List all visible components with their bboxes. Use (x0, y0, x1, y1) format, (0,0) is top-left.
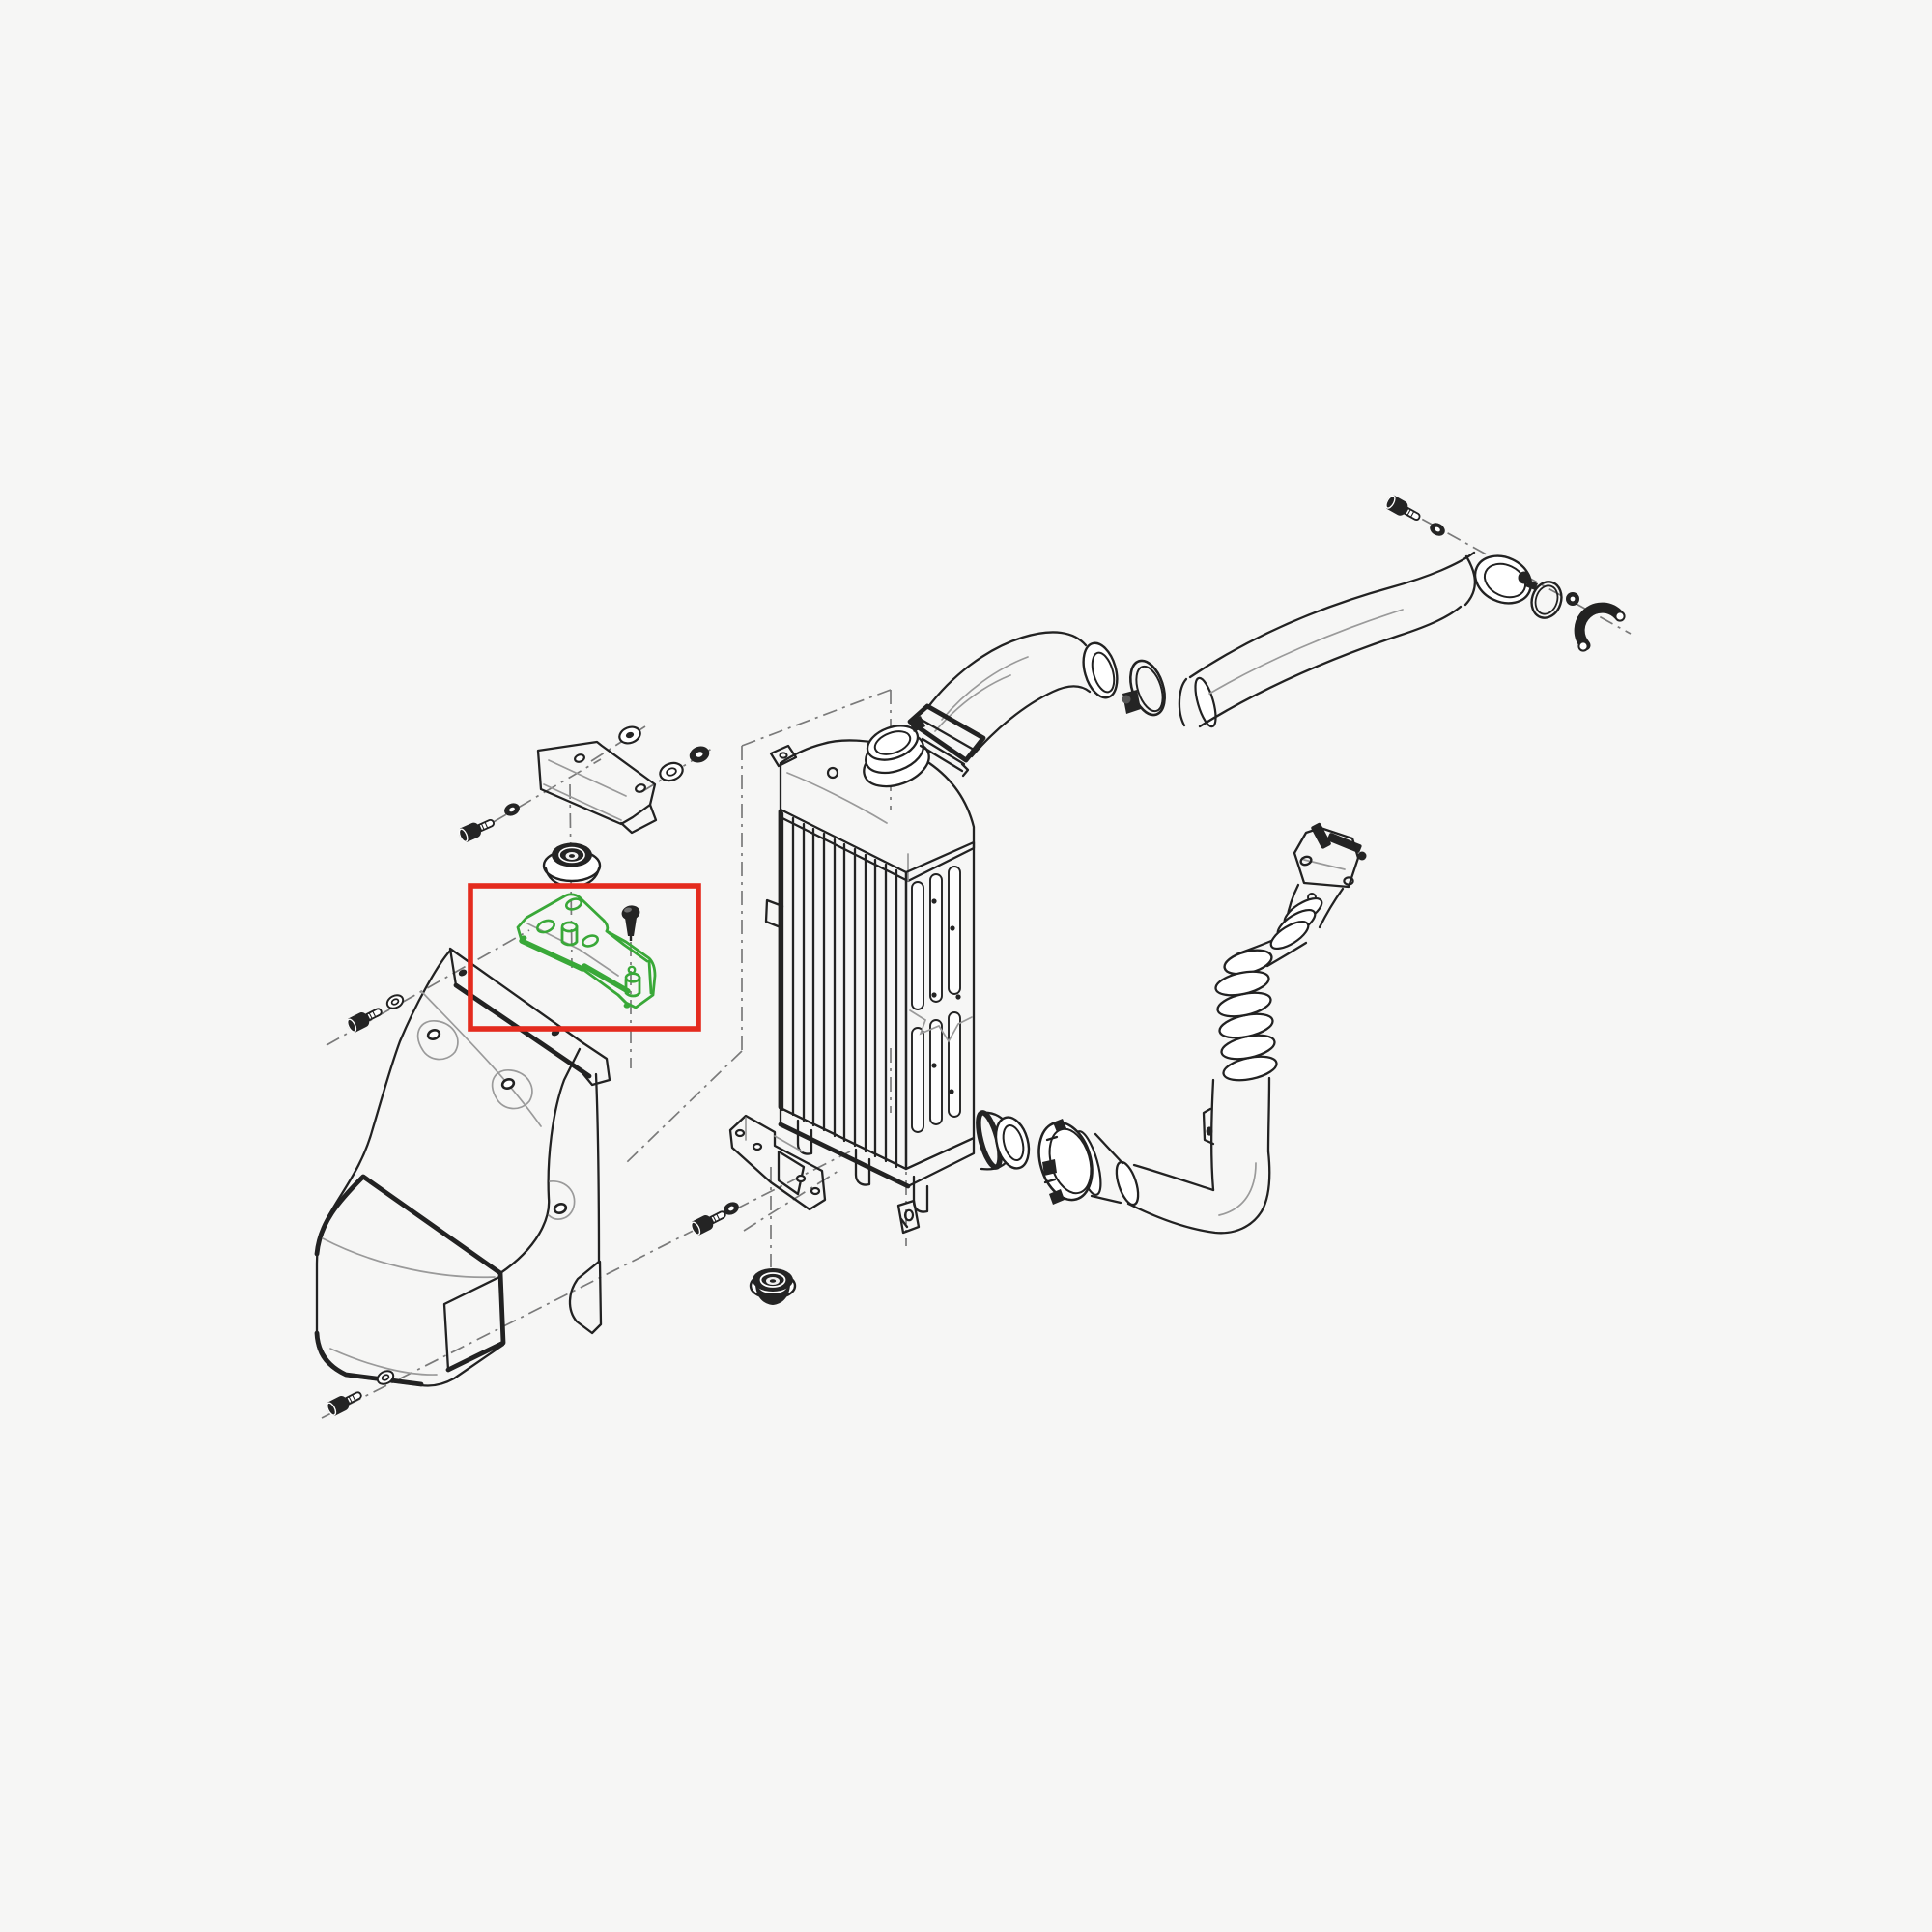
shield-bracket-bolt (457, 815, 497, 844)
bracket-dot-left (521, 935, 527, 940)
shield-bracket-hole-a (574, 753, 585, 763)
bracket-hole-left (536, 919, 556, 934)
lower-bracket-bolt (689, 1207, 728, 1237)
quick-connect-collar (1031, 1116, 1101, 1206)
neck-beads (1267, 894, 1326, 954)
lower-bracket-hole-2 (753, 1144, 761, 1150)
duct-bolt-upper (345, 1004, 384, 1035)
pipe-bead (1191, 676, 1220, 728)
duct-seam-3 (330, 1349, 437, 1375)
duct-frame-foot (570, 1262, 601, 1333)
hose-elbow (1128, 1151, 1269, 1233)
exploded-diagram (0, 0, 1932, 1932)
intercooler (766, 720, 1034, 1212)
duct-frame-right-edge (596, 1074, 599, 1262)
lower-bracket-hole-1 (736, 1130, 744, 1136)
parts-diagram-canvas (0, 0, 1932, 1932)
right-charge-hose (1031, 822, 1367, 1233)
charge-pipe (1179, 547, 1539, 728)
lower-bracket-hole-3 (797, 1176, 805, 1181)
duct-bolt-lower (325, 1387, 364, 1418)
hose-open-end (1078, 639, 1123, 702)
pipe-bottom-edge (1200, 607, 1461, 726)
pipe-bolt (1383, 494, 1423, 525)
highlight-box (470, 886, 698, 1029)
spring-clip (898, 1201, 919, 1233)
clip-hole-b (1615, 611, 1624, 620)
upper-charge-hose (909, 632, 1122, 776)
duct-mouth-lip (317, 1177, 503, 1384)
duct-seam-2 (323, 1238, 495, 1277)
worm-gear-clamp (1122, 656, 1172, 719)
clamp-screw (1122, 696, 1131, 704)
tank-stub (828, 768, 838, 778)
pipe-end-arc (1179, 679, 1186, 725)
clip-hole-a (1578, 641, 1587, 650)
hose-bellows (1213, 967, 1278, 1084)
retainer-clip (1579, 608, 1619, 645)
axis-boundary-box (626, 690, 891, 1163)
bracket-hole-mid (582, 934, 599, 949)
duct-washer-lower (376, 1369, 396, 1387)
shield-bracket-flap (621, 805, 656, 833)
bracket-hole-top (565, 897, 582, 912)
pipe-top-edge (1190, 553, 1474, 677)
hose-bottom-edge (972, 686, 1090, 756)
flange-nut-hole (1571, 597, 1576, 602)
lower-support-group (689, 1116, 919, 1305)
assembly-axis-lines (322, 505, 1631, 1418)
shield-bracket-fold (544, 760, 626, 820)
hose-side-tab-hole (1207, 1126, 1213, 1135)
hose-seam-2 (935, 675, 1010, 731)
duct-boss-1-hole (427, 1029, 440, 1041)
retaining-screw (620, 904, 641, 941)
duct-boss-3-hole (554, 1203, 567, 1215)
hose-vertical-tube (1211, 1078, 1269, 1190)
rubber-washer (687, 744, 711, 766)
duct-boss-1 (418, 1021, 458, 1060)
lower-grommet (751, 1268, 795, 1305)
flange-ear-hole-b (1344, 877, 1352, 884)
tank-ear-hole (780, 753, 786, 757)
bracket-bold-front-edge (522, 941, 628, 991)
lower-bracket-hole-4 (811, 1188, 819, 1194)
intercooler-outlet-port (974, 1111, 1034, 1172)
shield-bracket-group (457, 724, 712, 844)
shield-bracket-hole-b (635, 783, 646, 793)
hose-elbow-seam (1219, 1163, 1256, 1215)
hose-top-edge (927, 632, 1086, 708)
pipe-seam (1209, 610, 1403, 694)
pipe-collar (1465, 556, 1475, 605)
bottom-band (781, 1108, 974, 1186)
washer-large (658, 760, 685, 783)
duct-washer-upper (385, 993, 406, 1011)
bracket-dot-right (624, 1003, 631, 1008)
upper-grommet (544, 843, 600, 887)
